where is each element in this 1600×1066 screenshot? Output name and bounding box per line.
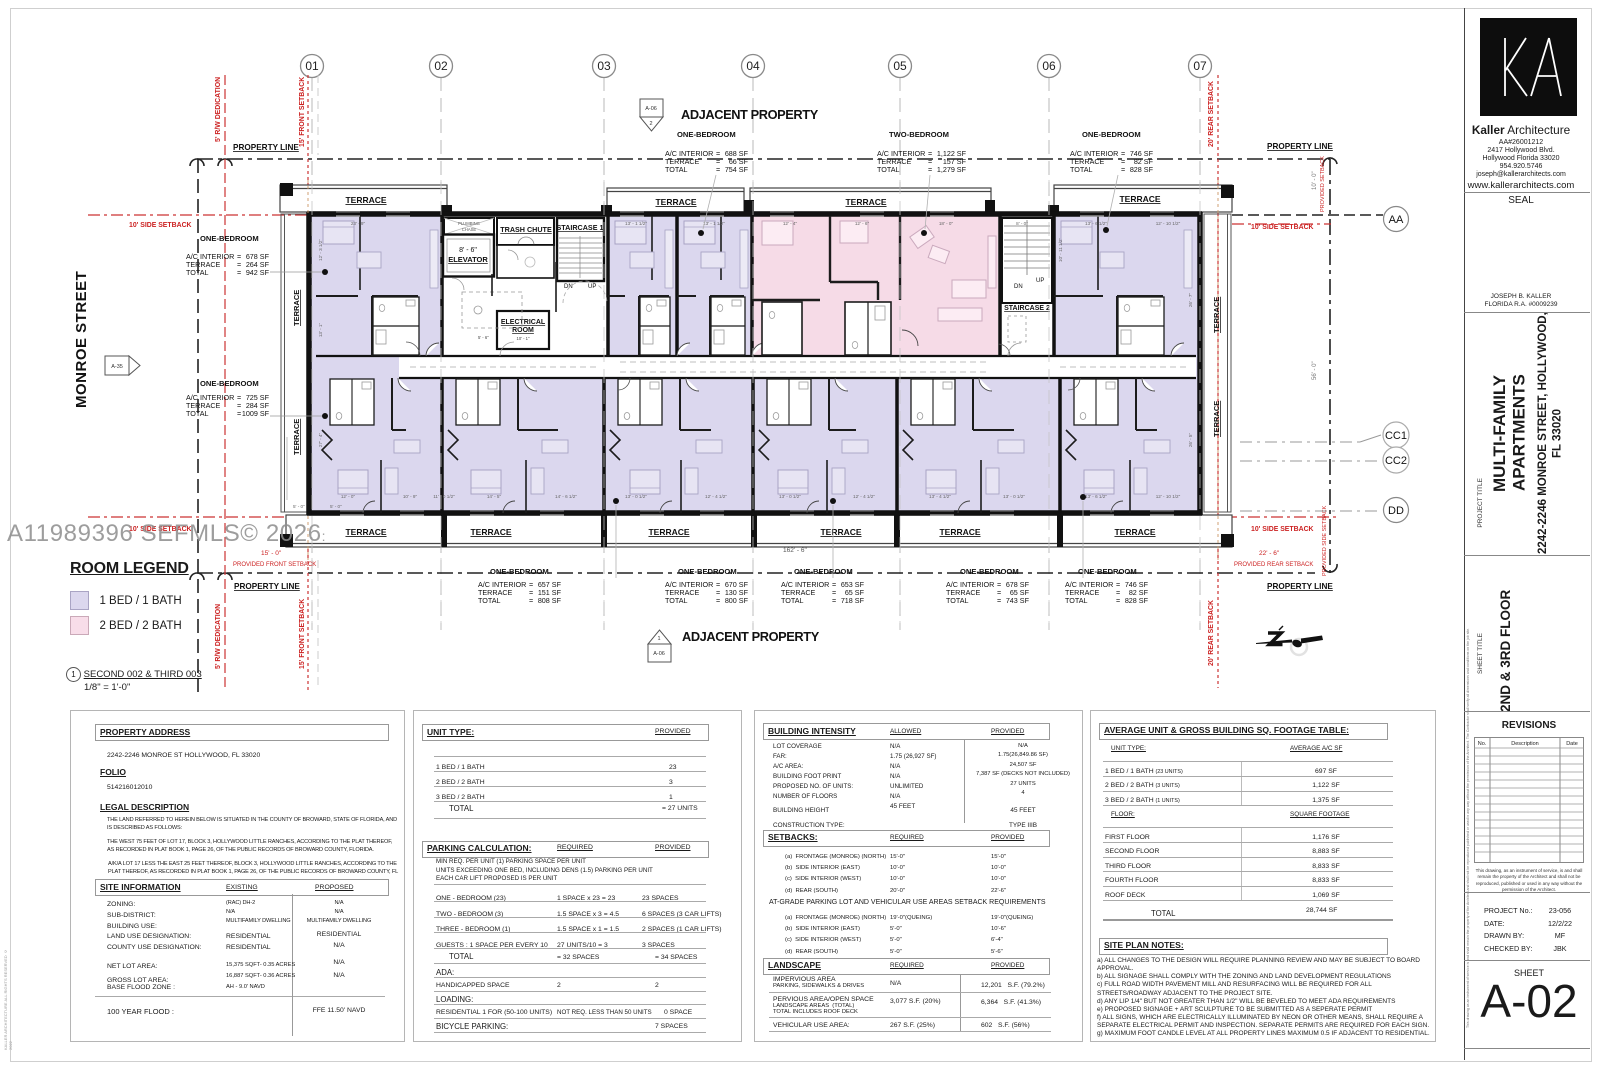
svg-text:TERRACE: TERRACE bbox=[1212, 401, 1221, 437]
svg-text:800 SF: 800 SF bbox=[725, 596, 749, 605]
svg-text:10' - 11 1/2": 10' - 11 1/2" bbox=[1058, 238, 1063, 262]
svg-text:TERRACE: TERRACE bbox=[648, 527, 689, 537]
svg-text:PROPERTY LINE: PROPERTY LINE bbox=[1267, 142, 1333, 151]
svg-text:10' SIDE SETBACK: 10' SIDE SETBACK bbox=[129, 222, 192, 229]
svg-text:18' - 0": 18' - 0" bbox=[939, 221, 954, 226]
svg-text:13' - 0 1/2": 13' - 0 1/2" bbox=[625, 494, 647, 499]
svg-text:TOTAL: TOTAL bbox=[665, 165, 688, 174]
svg-text:13' - 1": 13' - 1" bbox=[318, 323, 323, 338]
svg-text:743 SF: 743 SF bbox=[1006, 596, 1030, 605]
svg-text:12' - 4 1/2": 12' - 4 1/2" bbox=[853, 494, 875, 499]
svg-text:TOTAL: TOTAL bbox=[781, 596, 804, 605]
svg-text:ONE-BEDROOM: ONE-BEDROOM bbox=[794, 567, 853, 576]
svg-text:TOTAL: TOTAL bbox=[946, 596, 969, 605]
svg-text:ROOM: ROOM bbox=[512, 327, 534, 334]
svg-text:TOTAL: TOTAL bbox=[665, 596, 688, 605]
svg-text:Description: Description bbox=[1511, 741, 1539, 747]
svg-text:STAIRCASE 2: STAIRCASE 2 bbox=[1004, 305, 1050, 312]
svg-text:13' - 1 1/2": 13' - 1 1/2" bbox=[625, 221, 647, 226]
svg-text:Date: Date bbox=[1566, 741, 1578, 747]
svg-text:07: 07 bbox=[1193, 59, 1207, 73]
svg-text:754 SF: 754 SF bbox=[725, 165, 749, 174]
svg-text:ADJACENT PROPERTY: ADJACENT PROPERTY bbox=[682, 629, 820, 644]
svg-text:=: = bbox=[928, 165, 932, 174]
svg-text:05: 05 bbox=[893, 59, 907, 73]
svg-text:TOTAL: TOTAL bbox=[478, 596, 501, 605]
svg-text:=: = bbox=[997, 596, 1001, 605]
svg-text:26' - 5": 26' - 5" bbox=[1188, 433, 1193, 448]
svg-text:A-35: A-35 bbox=[111, 364, 123, 370]
svg-text:12' - 0": 12' - 0" bbox=[341, 494, 356, 499]
svg-text:TERRACE: TERRACE bbox=[1114, 527, 1155, 537]
svg-text:8' - 0": 8' - 0" bbox=[1016, 221, 1028, 226]
svg-text:5' - 0": 5' - 0" bbox=[330, 504, 342, 509]
svg-text:828 SF: 828 SF bbox=[1130, 165, 1154, 174]
svg-text:TERRACE: TERRACE bbox=[655, 197, 696, 207]
svg-text:5' - 0": 5' - 0" bbox=[293, 504, 305, 509]
svg-text:23' - 9": 23' - 9" bbox=[351, 221, 366, 226]
svg-text:22' - 6": 22' - 6" bbox=[1259, 550, 1280, 557]
svg-text:TERRACE: TERRACE bbox=[1119, 194, 1160, 204]
svg-text:01: 01 bbox=[305, 59, 319, 73]
svg-text:03: 03 bbox=[597, 59, 611, 73]
svg-text:13' - 4 1/2": 13' - 4 1/2" bbox=[929, 494, 951, 499]
svg-text:828 SF: 828 SF bbox=[1125, 596, 1149, 605]
svg-text:10' - 1": 10' - 1" bbox=[517, 336, 531, 341]
svg-text:TOTAL: TOTAL bbox=[1065, 596, 1088, 605]
svg-text:PROPERTY LINE: PROPERTY LINE bbox=[234, 582, 300, 591]
svg-text:TERRACE: TERRACE bbox=[845, 197, 886, 207]
svg-text:10' SIDE SETBACK: 10' SIDE SETBACK bbox=[1251, 526, 1314, 533]
svg-text:PROVIDED REAR SETBACK: PROVIDED REAR SETBACK bbox=[1234, 562, 1313, 568]
svg-text:12' - 4": 12' - 4" bbox=[783, 221, 798, 226]
svg-text:PROPERTY LINE: PROPERTY LINE bbox=[1267, 582, 1333, 591]
svg-text:15' FRONT SETBACK: 15' FRONT SETBACK bbox=[299, 77, 306, 147]
svg-text:ONE-BEDROOM: ONE-BEDROOM bbox=[490, 567, 549, 576]
svg-text:TOTAL: TOTAL bbox=[186, 409, 209, 418]
svg-text:20' REAR SETBACK: 20' REAR SETBACK bbox=[1208, 600, 1215, 666]
svg-text:11' - 0 1/2": 11' - 0 1/2" bbox=[433, 494, 455, 499]
svg-text:12' - 6": 12' - 6" bbox=[855, 221, 870, 226]
svg-text:5' - 6": 5' - 6" bbox=[478, 335, 489, 340]
svg-text:1,279 SF: 1,279 SF bbox=[937, 165, 967, 174]
svg-text:ONE-BEDROOM: ONE-BEDROOM bbox=[677, 130, 736, 139]
svg-text:=: = bbox=[1121, 165, 1125, 174]
svg-text:12' - 3 1/2": 12' - 3 1/2" bbox=[318, 239, 323, 261]
svg-text:TERRACE: TERRACE bbox=[1212, 297, 1221, 333]
svg-text:15' FRONT SETBACK: 15' FRONT SETBACK bbox=[299, 599, 306, 669]
svg-text:5' R/W DEDICATION: 5' R/W DEDICATION bbox=[215, 604, 222, 669]
svg-text:13' - 6 1/2": 13' - 6 1/2" bbox=[1085, 494, 1107, 499]
svg-text:15' - 0": 15' - 0" bbox=[261, 550, 282, 557]
svg-text:STAIRCASE 1: STAIRCASE 1 bbox=[557, 223, 604, 232]
svg-text:PROVIDED SETBACK: PROVIDED SETBACK bbox=[1320, 156, 1326, 212]
svg-text:TERRACE: TERRACE bbox=[292, 419, 301, 455]
svg-text:TERRACE: TERRACE bbox=[345, 527, 386, 537]
svg-text:TOTAL: TOTAL bbox=[877, 165, 900, 174]
svg-text:12' - 10 1/2": 12' - 10 1/2" bbox=[1156, 494, 1181, 499]
svg-text:ONE-BEDROOM: ONE-BEDROOM bbox=[1082, 130, 1141, 139]
svg-text:DN: DN bbox=[1014, 284, 1023, 290]
svg-text:ONE-BEDROOM: ONE-BEDROOM bbox=[200, 234, 259, 243]
svg-text:TOTAL: TOTAL bbox=[186, 268, 209, 277]
svg-text:10' SIDE SETBACK: 10' SIDE SETBACK bbox=[1251, 224, 1314, 231]
svg-text:20' REAR SETBACK: 20' REAR SETBACK bbox=[1208, 81, 1215, 147]
svg-text:10' - 0": 10' - 0" bbox=[1312, 171, 1318, 190]
svg-text:TERRACE: TERRACE bbox=[939, 527, 980, 537]
svg-text:14' - 6 1/2": 14' - 6 1/2" bbox=[555, 494, 577, 499]
svg-text:ONE-BEDROOM: ONE-BEDROOM bbox=[1078, 567, 1137, 576]
svg-text:5' R/W DEDICATION: 5' R/W DEDICATION bbox=[215, 77, 222, 142]
svg-text:56' - 0": 56' - 0" bbox=[1312, 361, 1318, 380]
svg-text:=: = bbox=[716, 165, 720, 174]
svg-text:PROVIDED SIDE SETBACK: PROVIDED SIDE SETBACK bbox=[1322, 505, 1328, 576]
svg-text:A-06: A-06 bbox=[645, 106, 657, 112]
svg-text:ONE-BEDROOM: ONE-BEDROOM bbox=[678, 567, 737, 576]
svg-text:TERRACE: TERRACE bbox=[292, 290, 301, 326]
svg-text:02: 02 bbox=[434, 59, 448, 73]
svg-text:1009 SF: 1009 SF bbox=[242, 409, 270, 418]
svg-text:942 SF: 942 SF bbox=[246, 268, 270, 277]
svg-text:13' - 0 1/2": 13' - 0 1/2" bbox=[779, 494, 801, 499]
svg-text:TWO-BEDROOM: TWO-BEDROOM bbox=[889, 130, 949, 139]
svg-text:PLUMBING: PLUMBING bbox=[458, 221, 480, 226]
svg-text:=: = bbox=[529, 596, 533, 605]
svg-text:12' - 4 1/2": 12' - 4 1/2" bbox=[705, 494, 727, 499]
svg-text:2: 2 bbox=[649, 121, 652, 127]
svg-text:CC2: CC2 bbox=[1385, 455, 1407, 467]
svg-text:ELEVATOR: ELEVATOR bbox=[448, 255, 488, 264]
svg-text:=: = bbox=[237, 409, 241, 418]
svg-text:13' - 6 1/2": 13' - 6 1/2" bbox=[1085, 221, 1107, 226]
svg-text:DD: DD bbox=[1388, 505, 1404, 517]
svg-text:PROVIDED FRONT SETBACK: PROVIDED FRONT SETBACK bbox=[233, 562, 316, 568]
svg-text:718 SF: 718 SF bbox=[841, 596, 865, 605]
svg-text:26' - 7": 26' - 7" bbox=[1188, 293, 1193, 308]
svg-text:TOTAL: TOTAL bbox=[1070, 165, 1093, 174]
svg-text:=: = bbox=[1116, 596, 1120, 605]
svg-text:10' - 9": 10' - 9" bbox=[403, 494, 418, 499]
svg-text:06: 06 bbox=[1042, 59, 1056, 73]
svg-text:8' - 6": 8' - 6" bbox=[459, 247, 477, 254]
svg-text:27' - 4": 27' - 4" bbox=[318, 433, 323, 448]
svg-text:CC1: CC1 bbox=[1385, 430, 1407, 442]
svg-text:=: = bbox=[716, 596, 720, 605]
svg-text:12' - 10 1/2": 12' - 10 1/2" bbox=[1156, 221, 1181, 226]
svg-text:ADJACENT PROPERTY: ADJACENT PROPERTY bbox=[681, 107, 819, 122]
svg-text:14' - 5": 14' - 5" bbox=[487, 494, 502, 499]
svg-text:=: = bbox=[832, 596, 836, 605]
svg-text:UP: UP bbox=[588, 284, 596, 290]
svg-text:TERRACE: TERRACE bbox=[345, 195, 386, 205]
svg-text:A-06: A-06 bbox=[653, 651, 665, 657]
svg-text:808 SF: 808 SF bbox=[538, 596, 562, 605]
svg-text:=: = bbox=[237, 268, 241, 277]
svg-text:ONE-BEDROOM: ONE-BEDROOM bbox=[200, 379, 259, 388]
svg-text:ONE-BEDROOM: ONE-BEDROOM bbox=[960, 567, 1019, 576]
svg-text:04: 04 bbox=[746, 59, 760, 73]
svg-text:PROPERTY LINE: PROPERTY LINE bbox=[233, 143, 299, 152]
svg-text:No.: No. bbox=[1478, 741, 1487, 747]
svg-text:AA: AA bbox=[1389, 214, 1404, 226]
svg-text:162' - 6": 162' - 6" bbox=[783, 547, 807, 554]
svg-text:TERRACE: TERRACE bbox=[820, 527, 861, 537]
svg-text:13' - 1 1/2": 13' - 1 1/2" bbox=[703, 221, 725, 226]
svg-text:13' - 0 1/2": 13' - 0 1/2" bbox=[1003, 494, 1025, 499]
svg-text:TRASH CHUTE: TRASH CHUTE bbox=[500, 225, 552, 234]
svg-text:TERRACE: TERRACE bbox=[470, 527, 511, 537]
svg-text:CHASE: CHASE bbox=[462, 227, 477, 232]
svg-text:ELECTRICAL: ELECTRICAL bbox=[501, 319, 546, 326]
svg-text:1: 1 bbox=[657, 636, 660, 642]
svg-text:UP: UP bbox=[1036, 278, 1044, 284]
svg-text:MONROE STREET: MONROE STREET bbox=[73, 271, 90, 408]
